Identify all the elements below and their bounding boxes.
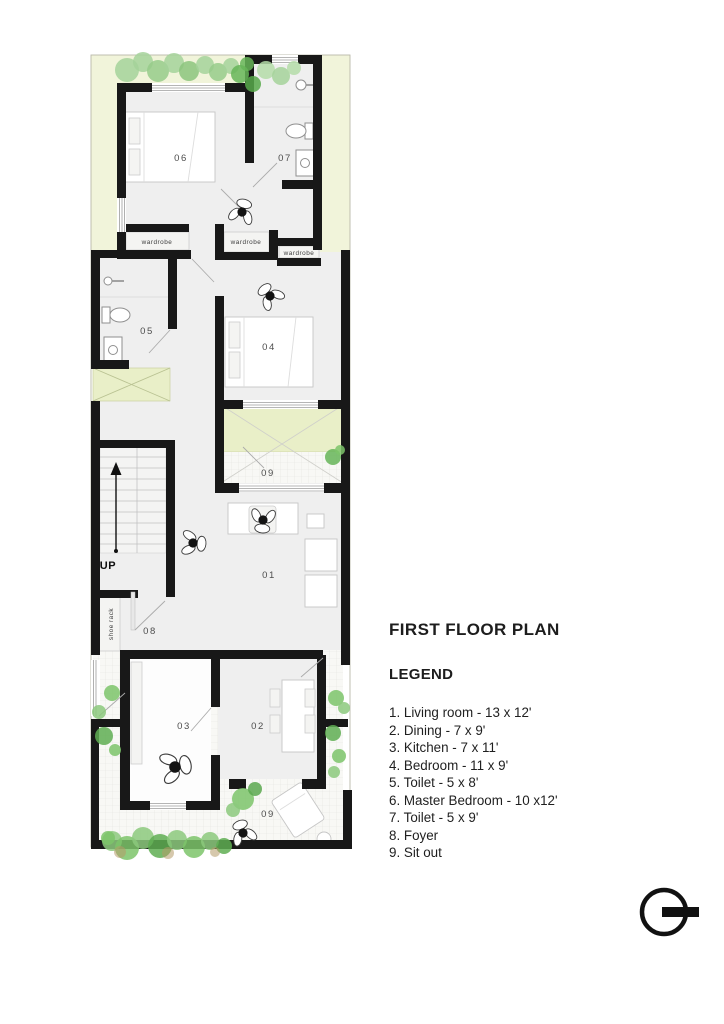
up-label: UP [100, 560, 116, 572]
logo-g-mark [642, 890, 699, 934]
legend-item-kitchen: 3. Kitchen - 7 x 11' [389, 739, 599, 757]
room-label-01: 01 [262, 570, 276, 581]
legend-item-sit-out: 9. Sit out [389, 844, 599, 862]
legend-block: FIRST FLOOR PLAN LEGEND 1. Living room -… [389, 620, 599, 862]
window-icon [117, 198, 126, 232]
sink-icon [296, 150, 314, 176]
room-label-08: 08 [143, 626, 157, 637]
sofa-icon [305, 575, 337, 607]
room-label-02: 02 [251, 721, 265, 732]
legend-item-living-room: 1. Living room - 13 x 12' [389, 704, 599, 722]
toilet-icon [102, 307, 130, 323]
legend-heading: LEGEND [389, 666, 599, 683]
legend-item-toilet-5: 5. Toilet - 5 x 8' [389, 774, 599, 792]
room-label-09-lower: 09 [261, 809, 275, 820]
room-label-07: 07 [278, 153, 292, 164]
legend-item-master-bedroom: 6. Master Bedroom - 10 x12' [389, 792, 599, 810]
side-table-icon [307, 514, 324, 528]
window-icon [243, 400, 318, 409]
window-icon [152, 83, 225, 92]
window-icon [150, 801, 186, 810]
room-label-04: 04 [262, 342, 276, 353]
bed-icon [125, 112, 215, 182]
plan-title: FIRST FLOOR PLAN [389, 620, 599, 640]
kitchen-counter [131, 662, 142, 764]
legend-list: 1. Living room - 13 x 12' 2. Dining - 7 … [389, 704, 599, 862]
room-label-09-upper: 09 [261, 468, 275, 479]
sink-icon [104, 337, 122, 363]
legend-item-foyer: 8. Foyer [389, 827, 599, 845]
railing-icon [239, 484, 324, 492]
wardrobe-label: wardrobe [230, 239, 262, 246]
room-label-06: 06 [174, 153, 188, 164]
wardrobe-label: wardrobe [141, 239, 173, 246]
legend-item-toilet-7: 7. Toilet - 5 x 9' [389, 809, 599, 827]
staircase [100, 447, 166, 553]
shoe-rack-label: shoe rack [108, 608, 115, 641]
room-label-03: 03 [177, 721, 191, 732]
sofa-icon [305, 539, 337, 571]
room-label-05: 05 [140, 326, 154, 337]
floor-plan-drawing: 06 07 05 04 09 01 08 03 02 09 UP wardrob… [0, 0, 724, 1024]
legend-item-dining: 2. Dining - 7 x 9' [389, 722, 599, 740]
toilet-icon [286, 123, 313, 139]
wardrobe-label: wardrobe [283, 250, 315, 257]
legend-item-bedroom: 4. Bedroom - 11 x 9' [389, 757, 599, 775]
